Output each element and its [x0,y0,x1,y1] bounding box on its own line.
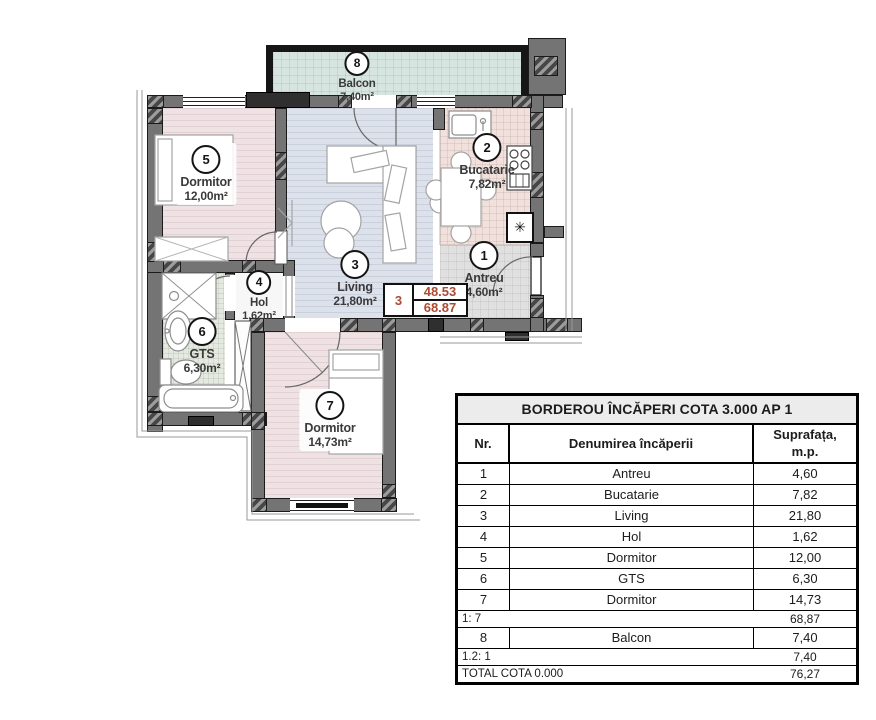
cell-name: GTS [510,569,754,589]
room-number-badge: 6 [187,317,216,346]
door-hol [283,276,295,316]
room-label-gts: 6 GTS 6,30m² [179,315,226,377]
room-number-badge: 5 [192,145,221,174]
room-area: 14,73m² [304,436,355,449]
col-header-area-line1: Suprafața, [773,427,837,443]
cell-nr: 8 [458,628,510,648]
room-label-balcon: 8 Balcon 7,40m² [333,49,380,105]
cell-name: Dormitor [510,548,754,568]
cell-name: Dormitor [510,590,754,610]
window-dormitor5 [183,95,245,108]
door-dormitor5 [246,231,287,264]
col-header-area: Suprafața, m.p. [754,425,856,462]
cell-nr: 1 [458,464,510,484]
table-subtotal-row: 1: 7 68,87 [458,611,856,628]
shower-gts [162,273,216,319]
table-subtotal2-row: 1.2: 1 7,40 [458,649,856,666]
table-row-balcon: 8 Balcon 7,40 [458,628,856,649]
total-value: 76,27 [754,666,856,682]
table-row: 4 Hol 1,62 [458,527,856,548]
room-number-badge: 8 [345,51,370,76]
cell-nr: 4 [458,527,510,547]
closet-star-icon: ✳ [514,219,526,236]
subtotal2-value: 7,40 [754,649,856,665]
borderou-table: BORDEROU ÎNCĂPERI COTA 3.000 AP 1 Nr. De… [455,393,859,685]
room-label-living: 3 Living 21,80m² [328,248,381,310]
floor-plan-page: 8 Balcon 7,40m² 5 Dormitor 12,00m² 3 Liv… [0,0,876,720]
subtotal-label: 1: 7 [458,611,754,627]
wardrobe-dormitor5 [155,237,228,261]
cell-name: Balcon [510,628,754,648]
table-total-row: TOTAL COTA 0.000 76,27 [458,666,856,682]
apartment-score-box: 3 48.53 68.87 [383,283,468,317]
table-row: 3 Living 21,80 [458,506,856,527]
room-name: Dormitor [304,422,355,436]
apartment-areas: 48.53 68.87 [414,285,466,315]
subtotal2-label: 1.2: 1 [458,649,754,665]
table-title: BORDEROU ÎNCĂPERI COTA 3.000 AP 1 [458,396,856,425]
table-row: 1 Antreu 4,60 [458,464,856,485]
room-label-dormitor7: 7 Dormitor 14,73m² [299,389,360,451]
table-row: 6 GTS 6,30 [458,569,856,590]
room-area: 4,60m² [464,286,503,299]
room-area: 6,30m² [184,362,221,375]
cell-area: 1,62 [754,527,856,547]
room-area: 1,62m² [242,310,276,322]
total-label: TOTAL COTA 0.000 [458,666,754,682]
cell-name: Living [510,506,754,526]
total-area-value: 68.87 [414,301,466,315]
cell-area: 21,80 [754,506,856,526]
table-row: 2 Bucatarie 7,82 [458,485,856,506]
cell-nr: 5 [458,548,510,568]
cell-name: Antreu [510,464,754,484]
cell-name: Hol [510,527,754,547]
table-row: 7 Dormitor 14,73 [458,590,856,611]
entry-closet: ✳ [506,212,534,243]
room-label-dormitor5: 5 Dormitor 12,00m² [175,143,236,205]
cell-nr: 3 [458,506,510,526]
apartment-number: 3 [385,285,414,315]
bathtub-gts [159,385,243,412]
table-row: 5 Dormitor 12,00 [458,548,856,569]
room-name: Dormitor [180,176,231,190]
room-number-badge: 4 [247,270,272,295]
window-kitchen [417,95,455,108]
cell-name: Bucatarie [510,485,754,505]
room-name: Living [333,281,376,295]
cell-area: 7,40 [754,628,856,648]
cell-nr: 6 [458,569,510,589]
room-name: Hol [242,297,276,310]
table-header-row: Nr. Denumirea încăperii Suprafața, m.p. [458,425,856,464]
room-name: Bucatarie [459,164,514,178]
room-name: Antreu [464,272,503,286]
cell-area: 6,30 [754,569,856,589]
useful-area-value: 48.53 [414,285,466,301]
room-label-bucatarie: 2 Bucatarie 7,82m² [454,131,519,193]
cell-area: 4,60 [754,464,856,484]
cell-nr: 2 [458,485,510,505]
cell-area: 14,73 [754,590,856,610]
col-header-nr: Nr. [458,425,510,462]
room-number-badge: 1 [469,241,498,270]
room-label-hol: 4 Hol 1,62m² [237,268,281,324]
cell-area: 12,00 [754,548,856,568]
room-area: 21,80m² [333,295,376,308]
window-dormitor7 [290,498,354,512]
room-name: Balcon [338,78,375,91]
col-header-name: Denumirea încăperii [510,425,754,462]
room-area: 7,82m² [459,178,514,191]
room-name: GTS [184,348,221,362]
col-header-area-line2: m.p. [792,444,819,460]
room-area: 12,00m² [180,190,231,203]
cell-area: 7,82 [754,485,856,505]
room-number-badge: 3 [340,250,369,279]
subtotal-value: 68,87 [754,611,856,627]
room-number-badge: 2 [472,133,501,162]
cell-nr: 7 [458,590,510,610]
room-area: 7,40m² [338,91,375,103]
room-number-badge: 7 [316,391,345,420]
